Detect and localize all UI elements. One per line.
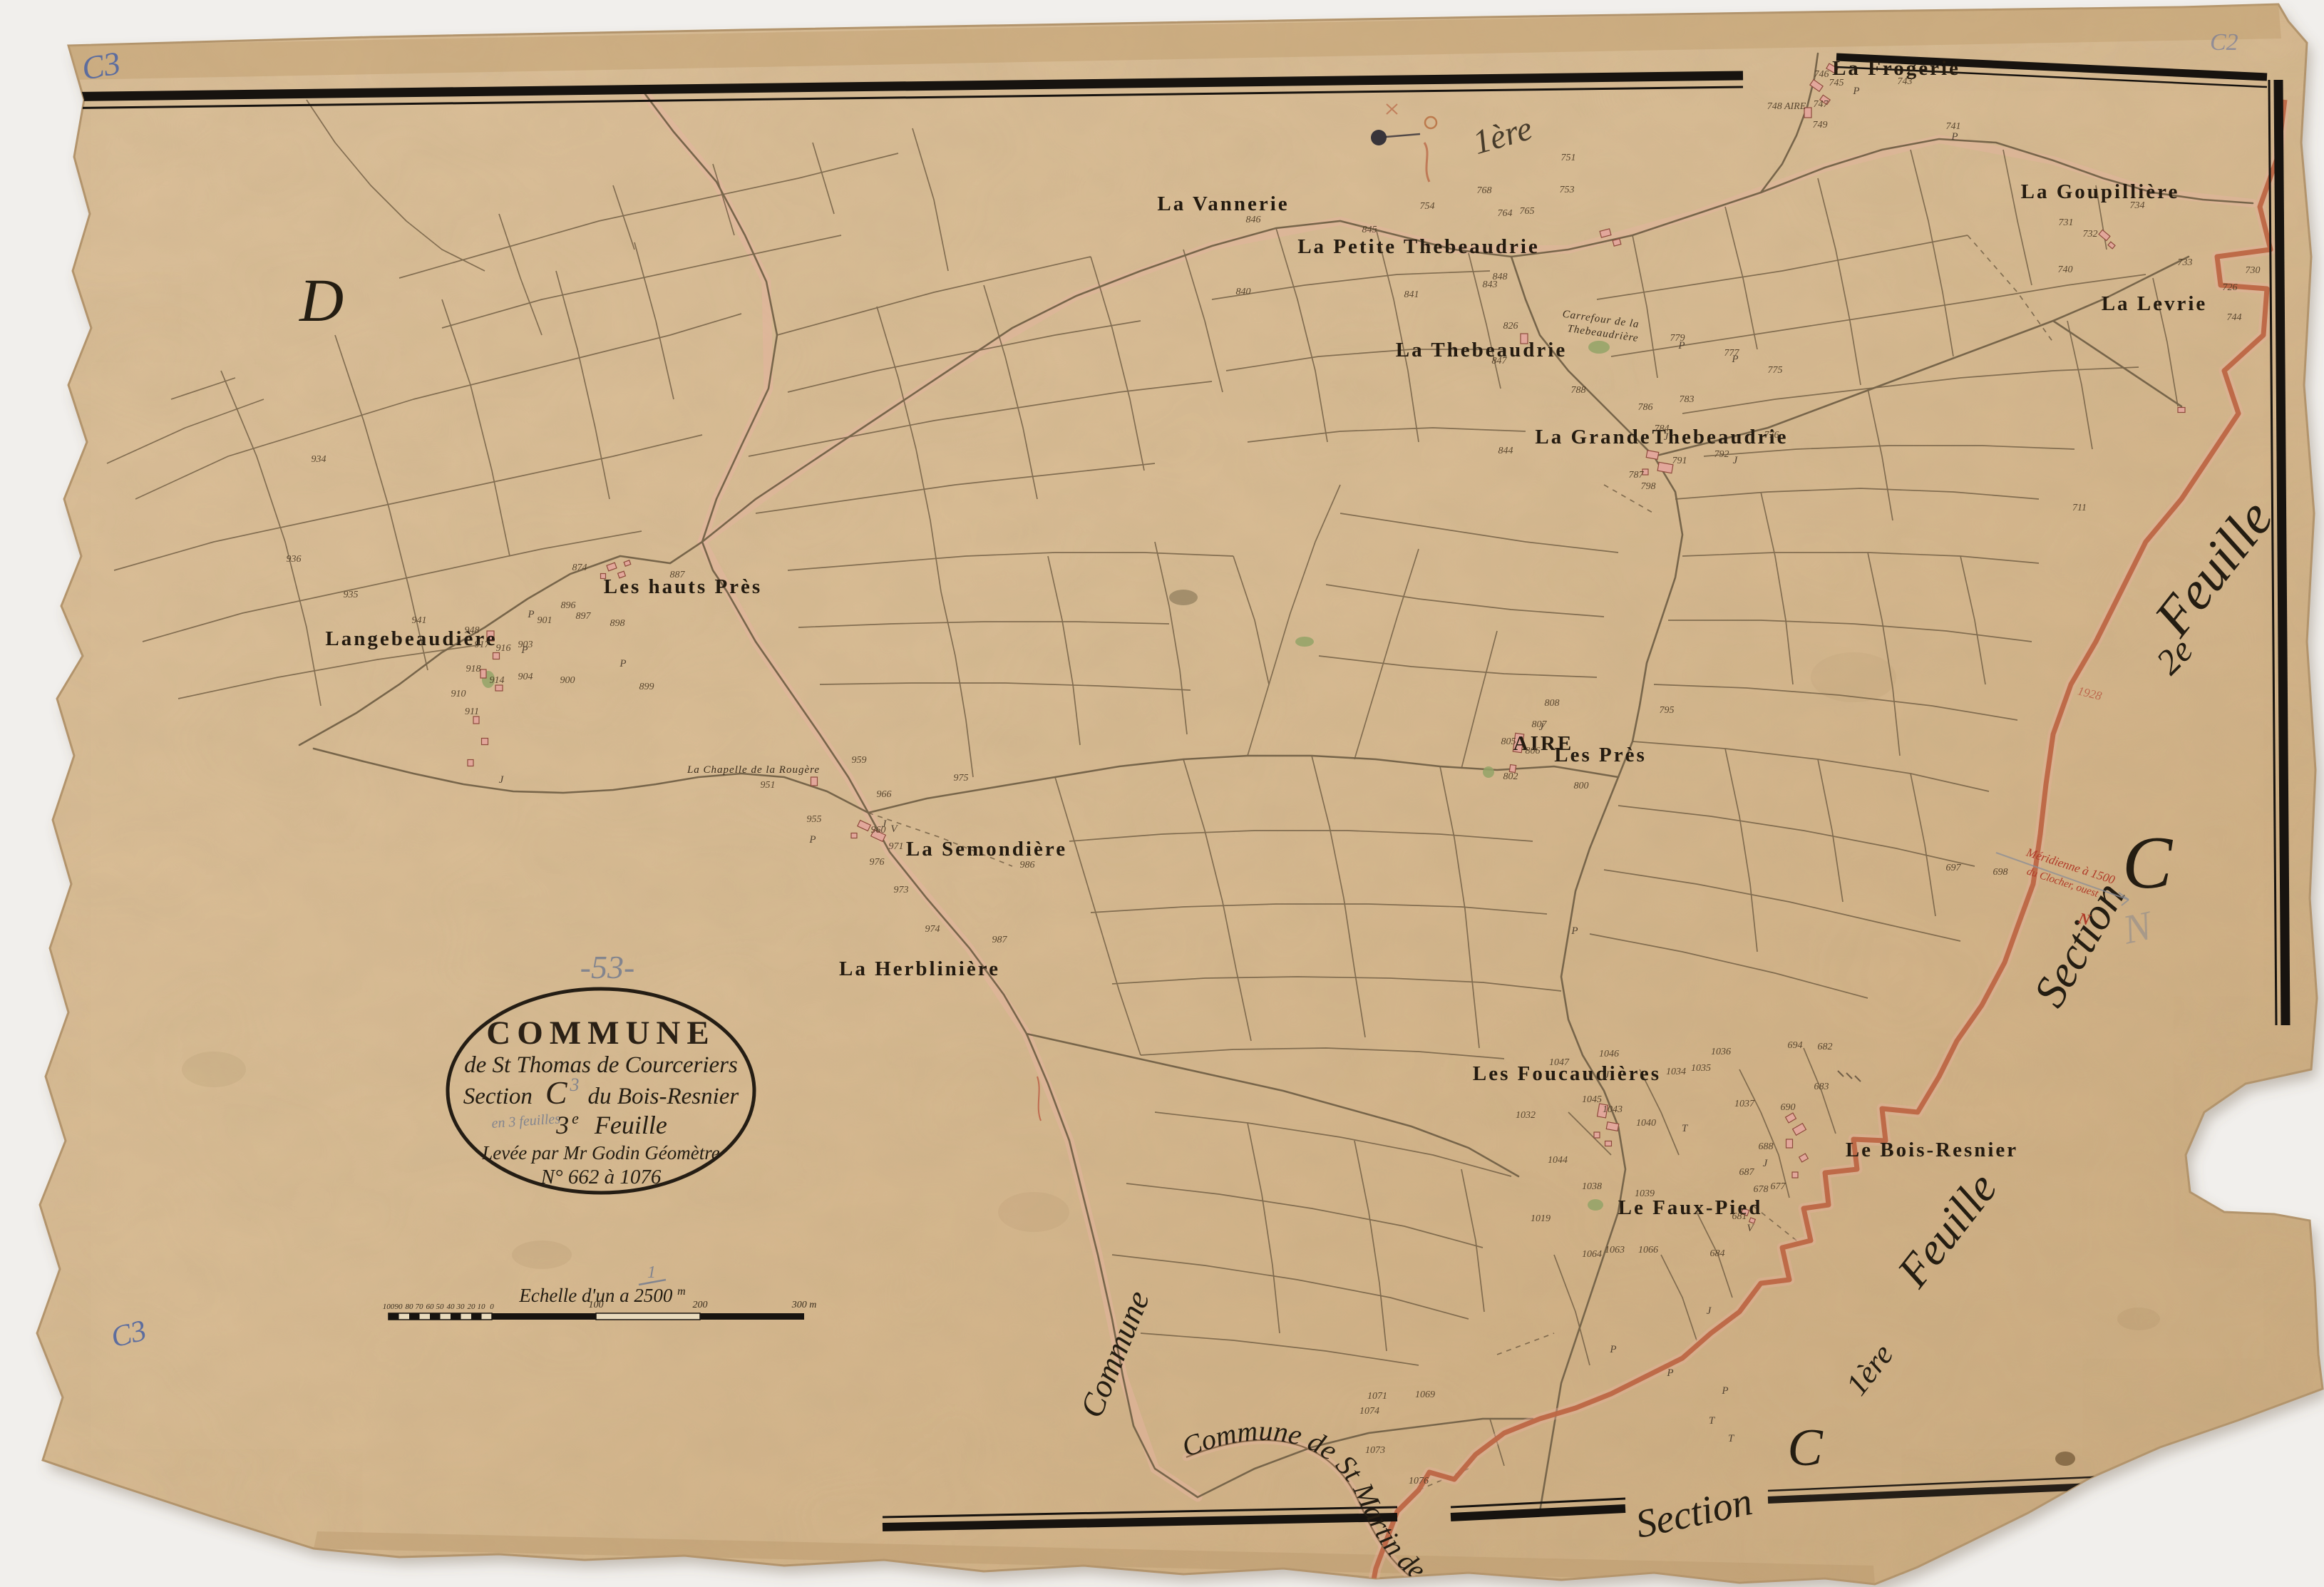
- parcel-number: 745: [1829, 78, 1844, 88]
- parcel-number: 1037: [1734, 1099, 1755, 1109]
- parcel-number: 677: [1771, 1181, 1786, 1192]
- place-label: La Frogerie: [1832, 57, 1960, 80]
- parcel-number: 1071: [1367, 1391, 1387, 1402]
- corner-mark-top-left: C3: [79, 44, 123, 87]
- place-label: La Petite Thebeaudrie: [1297, 235, 1540, 258]
- parcel-number: 935: [344, 590, 359, 600]
- parcel-number: 783: [1680, 394, 1695, 405]
- parcel-number: 900: [560, 675, 575, 686]
- scale-tick-label: 50: [436, 1303, 445, 1311]
- parcel-number: 1064: [1582, 1249, 1602, 1260]
- place-label: La Grande: [1535, 426, 1651, 448]
- land-use-letter: P: [619, 658, 626, 669]
- parcel-number: 740: [2058, 264, 2073, 275]
- parcel-number: 1032: [1516, 1110, 1536, 1121]
- place-label: La Herblinière: [839, 957, 1000, 980]
- sheet-pencil-number: -53-: [580, 949, 635, 985]
- parcel-number: 1063: [1605, 1245, 1625, 1255]
- parcel-number: 1038: [1582, 1181, 1602, 1192]
- parcel-number: 1044: [1548, 1155, 1568, 1166]
- parcel-number: 681: [1732, 1211, 1747, 1222]
- parcel-number: 951: [761, 780, 776, 791]
- land-use-letter: P: [1666, 1367, 1673, 1379]
- parcel-number: 911: [465, 707, 479, 717]
- land-use-letter: P: [520, 644, 528, 656]
- parcel-number: 841: [1404, 289, 1419, 300]
- parcel-number: 917: [475, 640, 490, 650]
- place-label: La Levrie: [2102, 292, 2208, 315]
- parcel-number: 987: [992, 935, 1008, 945]
- parcel-number: 1076: [1409, 1476, 1429, 1486]
- parcel-number: 941: [412, 615, 427, 626]
- land-use-letter: P: [1731, 354, 1738, 365]
- parcel-number: 744: [2227, 312, 2242, 323]
- parcel-number: 898: [610, 618, 625, 629]
- parcel-number: 690: [1781, 1102, 1796, 1113]
- cartouche-feuille-num: 3: [555, 1111, 569, 1139]
- scale-ticks-left: 1009080706050403020100: [383, 1303, 495, 1311]
- parcel-number: 795: [1660, 705, 1675, 716]
- scale-tick-label: 0: [490, 1303, 494, 1311]
- parcel-number: 731: [2059, 217, 2074, 228]
- land-use-letter: P: [1609, 1344, 1616, 1355]
- parcel-number: 1045: [1582, 1094, 1602, 1105]
- scale-tick-label: 100: [383, 1303, 395, 1311]
- scale-pencil-numerator: 1: [647, 1263, 656, 1282]
- parcel-number: 973: [894, 885, 909, 895]
- parcel-number: 697: [1946, 863, 1962, 873]
- scale-unit: m: [677, 1285, 686, 1298]
- place-label: La Chapelle de la Rougère: [687, 764, 820, 776]
- parcel-number: 840: [1236, 287, 1251, 297]
- place-label: AIRE: [1513, 732, 1574, 755]
- parcel-number: 846: [1246, 215, 1261, 225]
- parcel-number: 1040: [1636, 1118, 1656, 1129]
- scale-tick-label: 60: [426, 1303, 435, 1311]
- parcel-number: 776: [1764, 430, 1779, 441]
- place-label: La Vannerie: [1157, 192, 1289, 215]
- margin-d-mark: D: [299, 266, 344, 334]
- parcel-number: 791: [1672, 456, 1687, 466]
- place-label: La Thebeaudrie: [1396, 339, 1567, 361]
- parcel-number: 787: [1629, 470, 1645, 481]
- parcel-number: 751: [1561, 153, 1576, 163]
- parcel-number: 687: [1739, 1167, 1755, 1178]
- parcel-number: 918: [466, 664, 481, 674]
- scale-tick-label: 30: [456, 1303, 466, 1311]
- parcel-number: 914: [490, 675, 505, 686]
- land-use-letter: P: [1570, 925, 1578, 937]
- cartouche-title: COMMUNE: [486, 1015, 715, 1052]
- parcel-number: 732: [2083, 229, 2098, 240]
- parcel-number: 971: [889, 841, 904, 852]
- parcel-number: 746: [1814, 69, 1829, 80]
- scale-tick-label: 10: [478, 1303, 486, 1311]
- scale-tick-label: 80: [406, 1303, 414, 1311]
- parcel-number: 775: [1768, 365, 1783, 376]
- parcel-number: 1047: [1549, 1057, 1570, 1068]
- parcel-number: 975: [954, 773, 969, 784]
- parcel-number: 741: [1946, 121, 1961, 132]
- parcel-number: 848: [1493, 272, 1508, 282]
- parcel-number: 694: [1788, 1040, 1803, 1051]
- scale-tick-label: 200: [693, 1300, 708, 1310]
- parcel-number: 684: [1710, 1248, 1725, 1259]
- parcel-number: 936: [287, 554, 302, 565]
- parcel-number: 808: [1545, 698, 1560, 709]
- parcel-number: 1039: [1635, 1188, 1655, 1199]
- scale-tick-label: 40: [447, 1303, 456, 1311]
- cadastral-map-canvas: -53- COMMUNE de St Thomas de Courceriers…: [0, 0, 2324, 1587]
- scale-tick-label: 90: [395, 1303, 403, 1311]
- parcel-number: 711: [2072, 503, 2087, 513]
- land-use-letter: P: [1721, 1385, 1728, 1397]
- parcel-number: 747: [1814, 99, 1829, 110]
- cartouche-section-sup: 3: [570, 1074, 580, 1095]
- parcel-number: 798: [1641, 481, 1656, 492]
- parcel-number: 805: [1501, 736, 1516, 747]
- cartouche-parcel-range: N° 662 à 1076: [540, 1166, 662, 1188]
- parcel-number: 754: [1420, 201, 1435, 212]
- place-label: Le Bois-Resnier: [1846, 1139, 2018, 1161]
- cartouche-feuille-sup: e: [572, 1109, 579, 1127]
- parcel-number: 733: [2178, 257, 2193, 268]
- parcel-number: 845: [1362, 225, 1377, 235]
- parcel-number: 1046: [1599, 1049, 1619, 1059]
- place-label: La Goupillière: [2021, 180, 2180, 203]
- parcel-number: 1035: [1691, 1063, 1711, 1074]
- parcel-number: 904: [518, 672, 533, 682]
- parcel-number: 788: [1571, 385, 1586, 396]
- parcel-number: 800: [1574, 781, 1589, 791]
- parcel-number: 974: [925, 924, 940, 935]
- land-use-letter: P: [1677, 340, 1685, 351]
- parcel-number: 1019: [1531, 1213, 1551, 1224]
- parcel-number: 768: [1477, 185, 1492, 196]
- paper-texture: [0, 0, 2324, 1587]
- parcel-number: 786: [1638, 402, 1653, 413]
- cartouche-surveyor: Levée par Mr Godin Géomètre: [481, 1142, 719, 1164]
- parcel-number: 844: [1498, 446, 1513, 456]
- parcel-number: 897: [576, 611, 592, 622]
- parcel-number: 683: [1814, 1082, 1829, 1092]
- margin-c-right: C: [2122, 821, 2174, 904]
- cartouche-commune-name: de St Thomas de Courceriers: [464, 1052, 738, 1078]
- parcel-number: 874: [572, 563, 587, 573]
- parcel-number: 899: [639, 682, 654, 692]
- scale-tick-label: 300 m: [791, 1300, 817, 1310]
- parcel-number: 749: [1813, 120, 1828, 130]
- parcel-number: 948: [465, 625, 480, 636]
- scale-tick-label: 100: [589, 1300, 604, 1310]
- parcel-number: 726: [2223, 282, 2238, 293]
- cartouche-section-word: Section: [463, 1084, 533, 1109]
- parcel-number: 1074: [1359, 1406, 1379, 1417]
- scale-bar-strip: [389, 1313, 804, 1320]
- cartouche-feuille-word: Feuille: [594, 1111, 667, 1139]
- parcel-number: 748 AIRE: [1767, 101, 1806, 112]
- parcel-number: 682: [1818, 1042, 1833, 1052]
- cartouche-section-letter: C: [545, 1074, 568, 1111]
- corner-mark-bottom-right: C3: [2271, 1549, 2295, 1573]
- scale-tick-label: 70: [416, 1303, 424, 1311]
- parcel-number: 887: [670, 570, 686, 580]
- parcel-number: 1066: [1638, 1245, 1658, 1255]
- parcel-number: 688: [1759, 1141, 1774, 1152]
- parcel-number: 743: [1898, 76, 1913, 87]
- ink-blot: [1371, 130, 1387, 145]
- parcel-number: 698: [1993, 867, 2008, 878]
- parcel-number: 806: [1526, 746, 1541, 756]
- parcel-number: 792: [1714, 449, 1729, 460]
- parcel-number: 934: [312, 454, 327, 465]
- scanned-map-sheet: -53- COMMUNE de St Thomas de Courceriers…: [0, 0, 2324, 1587]
- parcel-number: 966: [877, 789, 892, 800]
- parcel-number: 1043: [1603, 1104, 1623, 1115]
- cartouche-section-rest: du Bois-Resnier: [588, 1084, 739, 1109]
- place-label: La Semondière: [906, 838, 1067, 861]
- parcel-number: 678: [1754, 1184, 1769, 1195]
- parcel-number: 1036: [1711, 1047, 1731, 1057]
- scale-tick-label: 20: [468, 1303, 476, 1311]
- parcel-number: 955: [807, 814, 822, 825]
- corner-mark-top-right: C2: [2210, 29, 2238, 56]
- parcel-number: 802: [1503, 771, 1518, 782]
- parcel-number: 986: [1020, 860, 1035, 870]
- parcel-number: 734: [2130, 200, 2145, 211]
- parcel-number: 764: [1498, 208, 1513, 219]
- land-use-letter: P: [527, 609, 534, 620]
- parcel-number: 901: [538, 615, 552, 626]
- margin-c-bottom: C: [1787, 1419, 1824, 1477]
- parcel-number: 730: [2246, 265, 2261, 276]
- land-use-letter: P: [1852, 86, 1859, 97]
- parcel-number: 826: [1503, 321, 1518, 332]
- parcel-number: 1073: [1365, 1445, 1385, 1456]
- parcel-number: 976: [870, 857, 885, 868]
- parcel-number: 959: [852, 755, 867, 766]
- parcel-number: 1034: [1666, 1067, 1686, 1077]
- parcel-number: 1069: [1415, 1390, 1435, 1400]
- parcel-number: 847: [1492, 356, 1508, 366]
- parcel-number: 910: [451, 689, 466, 699]
- parcel-number: 753: [1560, 185, 1575, 195]
- parcel-number: 916: [496, 643, 511, 654]
- land-use-letter: P: [1950, 131, 1958, 143]
- land-use-letter: P: [808, 834, 816, 846]
- parcel-number: 765: [1520, 206, 1535, 217]
- parcel-number: 896: [561, 600, 576, 611]
